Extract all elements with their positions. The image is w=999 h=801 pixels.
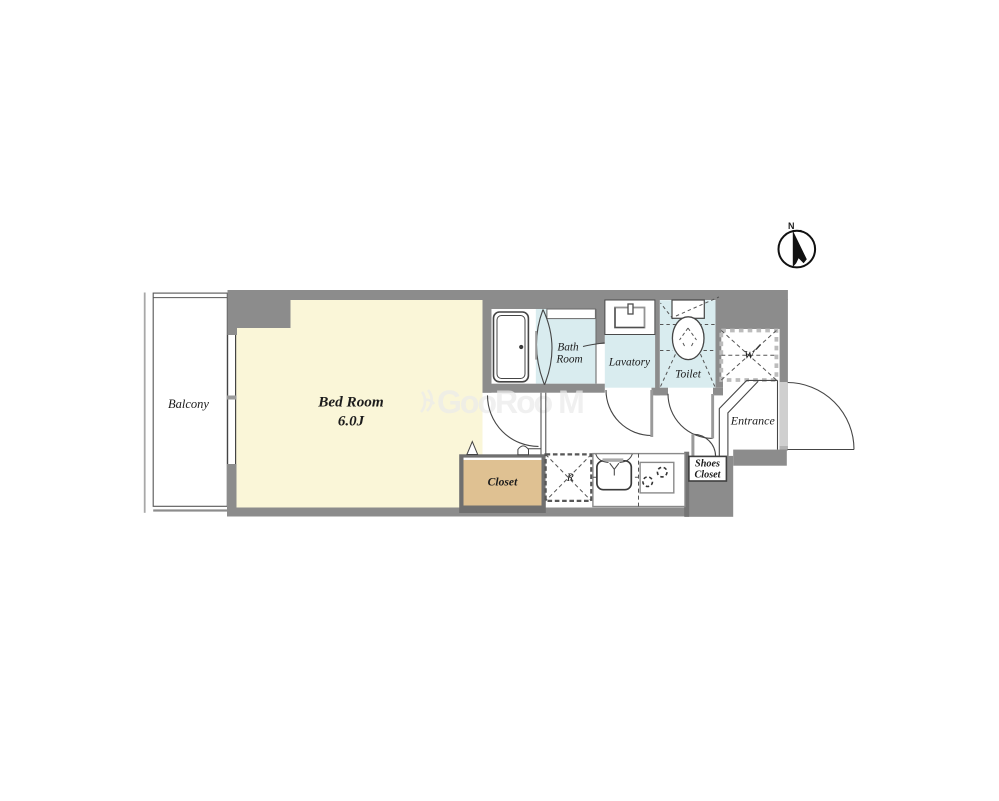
svg-text:Closet: Closet <box>694 470 721 481</box>
svg-text:Toilet: Toilet <box>675 368 702 380</box>
svg-text:Bath: Bath <box>557 342 579 354</box>
svg-text:6.0J: 6.0J <box>338 414 365 430</box>
svg-text:R: R <box>566 472 574 484</box>
svg-text:Entrance: Entrance <box>730 414 776 428</box>
svg-text:W: W <box>744 348 755 362</box>
svg-text:Balcony: Balcony <box>168 397 209 411</box>
svg-text:Bed Room: Bed Room <box>317 394 384 411</box>
svg-text:GooRoo M: GooRoo M <box>437 384 583 420</box>
svg-text:Room: Room <box>555 354 582 366</box>
svg-text:Lavatory: Lavatory <box>608 356 651 368</box>
svg-text:N: N <box>788 221 795 231</box>
svg-text:Closet: Closet <box>488 476 518 489</box>
svg-text:Shoes: Shoes <box>695 459 720 470</box>
